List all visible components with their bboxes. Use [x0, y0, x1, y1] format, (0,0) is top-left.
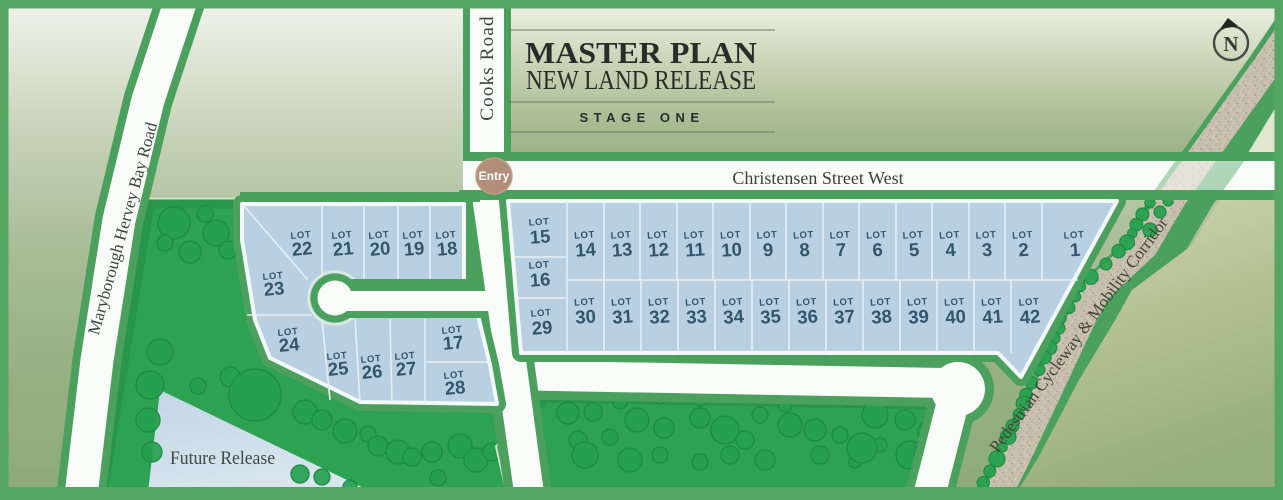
svg-text:7: 7 — [835, 239, 847, 261]
svg-text:28: 28 — [444, 376, 466, 399]
svg-text:33: 33 — [686, 305, 708, 327]
svg-text:32: 32 — [649, 305, 671, 327]
svg-text:22: 22 — [291, 237, 313, 260]
svg-text:19: 19 — [403, 237, 425, 260]
svg-text:23: 23 — [263, 277, 285, 300]
svg-text:41: 41 — [982, 305, 1004, 327]
svg-text:N: N — [1223, 32, 1238, 56]
svg-text:11: 11 — [685, 238, 706, 260]
svg-text:Future Release: Future Release — [170, 448, 275, 469]
svg-text:Christensen Street West: Christensen Street West — [732, 168, 903, 188]
svg-text:8: 8 — [799, 239, 811, 261]
svg-text:13: 13 — [611, 238, 633, 260]
svg-text:40: 40 — [945, 305, 967, 327]
svg-text:5: 5 — [908, 239, 920, 261]
svg-text:21: 21 — [332, 237, 354, 260]
svg-text:2: 2 — [1018, 239, 1030, 261]
svg-text:15: 15 — [529, 225, 551, 247]
svg-text:10: 10 — [721, 238, 743, 260]
svg-text:36: 36 — [797, 305, 819, 327]
svg-text:18: 18 — [436, 237, 458, 260]
svg-text:38: 38 — [871, 305, 893, 327]
svg-text:14: 14 — [575, 238, 598, 260]
svg-text:16: 16 — [529, 268, 551, 290]
svg-text:Entry: Entry — [479, 169, 510, 183]
svg-text:12: 12 — [648, 238, 670, 260]
svg-text:26: 26 — [361, 360, 383, 383]
svg-text:30: 30 — [575, 305, 597, 327]
svg-text:34: 34 — [723, 305, 746, 327]
svg-text:42: 42 — [1019, 305, 1041, 327]
svg-text:Cooks Road: Cooks Road — [477, 15, 498, 120]
svg-text:6: 6 — [872, 239, 884, 261]
svg-text:39: 39 — [908, 305, 930, 327]
svg-text:35: 35 — [760, 305, 782, 327]
svg-text:27: 27 — [395, 357, 417, 380]
svg-text:3: 3 — [981, 239, 993, 261]
svg-text:17: 17 — [442, 331, 464, 354]
svg-text:20: 20 — [369, 237, 391, 260]
svg-text:29: 29 — [531, 316, 553, 338]
svg-text:1: 1 — [1069, 239, 1081, 261]
svg-text:STAGE ONE: STAGE ONE — [579, 110, 704, 125]
svg-text:25: 25 — [327, 357, 349, 380]
svg-text:24: 24 — [278, 333, 301, 356]
svg-text:NEW LAND RELEASE: NEW LAND RELEASE — [526, 65, 756, 95]
svg-text:31: 31 — [612, 305, 634, 327]
svg-text:37: 37 — [834, 305, 856, 327]
svg-text:9: 9 — [762, 239, 774, 261]
